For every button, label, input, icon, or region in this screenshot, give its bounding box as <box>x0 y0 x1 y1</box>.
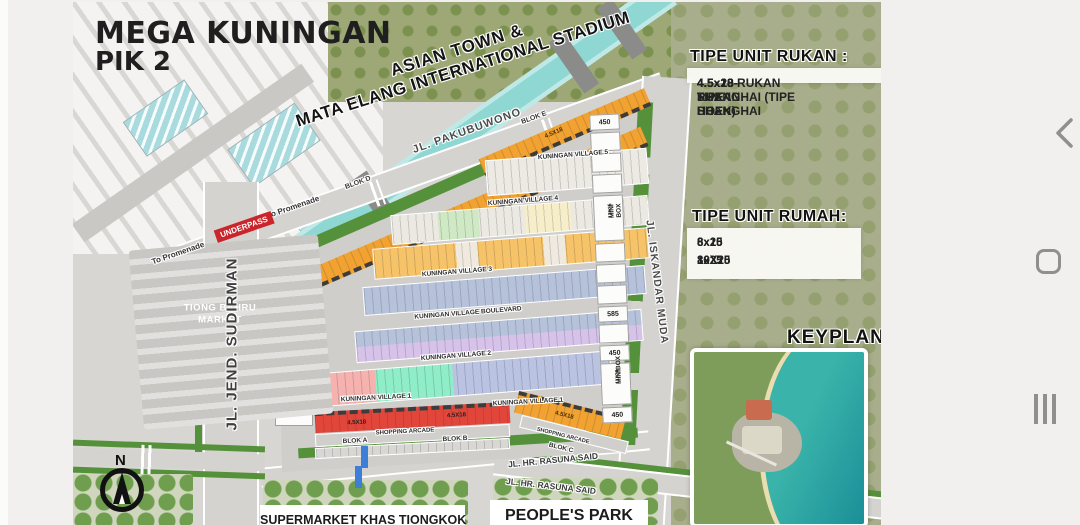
minibox-unit <box>596 263 627 283</box>
plan-title-line2: PIK 2 <box>95 47 392 77</box>
keyplan-title: KEYPLAN <box>787 327 881 349</box>
minibox-label-lower: MINIBOX 11X30 <box>600 362 632 405</box>
nav-recents-button[interactable] <box>1034 394 1068 426</box>
recents-icon <box>1043 394 1047 424</box>
area-badge: 585 <box>598 305 629 322</box>
road-label-sudirman: JL. JEND. SUDIRMAN <box>224 257 241 430</box>
back-chevron-icon <box>1051 116 1079 150</box>
tiong-bahru-market-label: TIONG BAHRU MARKET <box>184 303 257 328</box>
legend-rumah-title: TIPE UNIT RUMAH: <box>692 208 847 226</box>
minibox-lower-size: 11X30 <box>615 369 621 383</box>
blue-route-marker <box>353 446 373 488</box>
minibox-upper-size: 13X35 <box>608 203 614 218</box>
minibox-label-upper: MINI BOX 13X35 <box>593 194 625 241</box>
masterplan-image: 4.5x20 4.5X18 4.5X18 4.5X18 4.5X18 4.5X1… <box>73 2 881 525</box>
legend-rumah: 6x15 8x15 8x20 8x25 10X15 10X20 <box>687 228 861 279</box>
plan-title: MEGA KUNINGAN PIK 2 <box>95 16 392 77</box>
screenshot-root: 4.5x20 4.5X18 4.5X18 4.5X18 4.5X18 4.5X1… <box>0 0 1080 525</box>
home-icon <box>1036 249 1061 274</box>
minibox-unit <box>592 173 623 193</box>
minibox-unit <box>595 242 626 262</box>
compass-needle-notch <box>119 494 125 504</box>
nav-back-button[interactable] <box>1036 98 1066 134</box>
keyplan-image <box>690 348 868 525</box>
compass-n-label: N <box>115 452 126 469</box>
blok-a-label: BLOK A <box>342 437 367 445</box>
nav-home-button[interactable] <box>1036 249 1067 280</box>
minibox-unit <box>597 284 628 304</box>
keyplan-development-block <box>746 400 772 420</box>
plan-title-line1: MEGA KUNINGAN <box>95 16 392 51</box>
minibox-unit <box>598 323 629 343</box>
area-badge: 450 <box>589 114 620 131</box>
blue-route-segment <box>361 446 368 468</box>
supermarket-box: SUPERMARKET KHAS TIONGKOK <box>260 505 465 525</box>
peoples-park-box: PEOPLE'S PARK <box>490 500 648 525</box>
legend-rukan-title: TIPE UNIT RUKAN : <box>690 48 848 66</box>
peoples-park-label: PEOPLE'S PARK <box>505 507 633 524</box>
recents-icon <box>1052 394 1056 424</box>
blok-b-label: BLOK B <box>442 435 467 443</box>
area-badge: 450 <box>602 406 633 423</box>
android-navbar <box>1013 0 1080 525</box>
legend-rukan: 4.5x20 4.5x20-TIPE HOEK 4.5x18 4.5x18-TI… <box>687 68 881 83</box>
recents-icon <box>1034 394 1038 424</box>
blue-route-segment <box>355 466 362 488</box>
supermarket-label: SUPERMARKET KHAS TIONGKOK <box>260 513 466 525</box>
compass: N <box>93 452 155 525</box>
screen-left-margin <box>0 0 8 525</box>
